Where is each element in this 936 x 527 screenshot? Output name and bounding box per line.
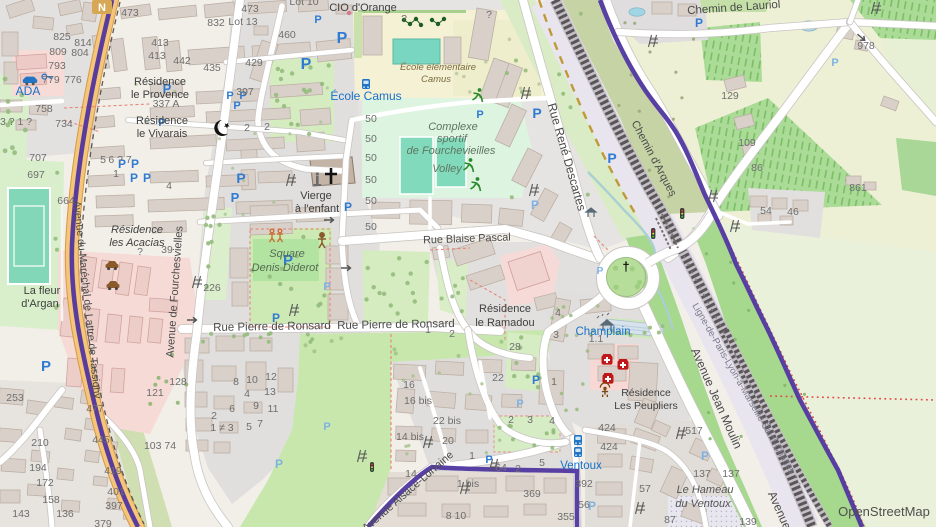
svg-text:8: 8	[233, 376, 239, 388]
svg-text:50: 50	[365, 152, 377, 164]
svg-text:776: 776	[64, 74, 82, 86]
svg-text:460: 460	[278, 29, 296, 41]
svg-text:137: 137	[693, 468, 711, 480]
svg-text:20: 20	[442, 435, 454, 447]
svg-text:4: 4	[166, 180, 172, 192]
svg-text:Rue Pierre de Ronsard: Rue Pierre de Ronsard	[213, 320, 331, 334]
svg-text:337 A: 337 A	[153, 98, 180, 110]
svg-text:7: 7	[257, 418, 263, 430]
svg-text:473: 473	[241, 3, 259, 15]
svg-text:8 10: 8 10	[446, 510, 467, 522]
svg-text:3: 3	[553, 329, 559, 341]
svg-text:1: 1	[551, 376, 557, 388]
svg-text:Vierge: Vierge	[300, 190, 332, 202]
svg-text:664: 664	[57, 195, 75, 207]
svg-text:413: 413	[148, 50, 166, 62]
svg-text:14: 14	[405, 468, 417, 480]
svg-text:445: 445	[92, 434, 110, 446]
svg-text:758: 758	[35, 103, 53, 115]
svg-text:707: 707	[29, 152, 47, 164]
svg-text:793: 793	[48, 60, 66, 72]
svg-text:N: N	[98, 2, 106, 14]
svg-text:2: 2	[211, 410, 217, 422]
svg-text:5: 5	[100, 154, 106, 166]
svg-text:5: 5	[539, 457, 545, 469]
svg-text:86: 86	[751, 162, 763, 174]
svg-text:Ventoux: Ventoux	[560, 460, 602, 472]
svg-text:P: P	[695, 16, 703, 30]
svg-text:P: P	[275, 457, 283, 471]
svg-text:210: 210	[31, 437, 49, 449]
svg-text:P: P	[531, 198, 539, 212]
svg-text:P: P	[314, 14, 321, 26]
svg-text:809: 809	[49, 46, 67, 58]
svg-text:14 bis: 14 bis	[396, 431, 424, 443]
svg-text:413: 413	[151, 37, 169, 49]
svg-text:136: 136	[56, 508, 74, 520]
svg-text:Complexe: Complexe	[428, 121, 478, 133]
svg-text:56: 56	[578, 499, 590, 511]
svg-text:Denis Diderot: Denis Diderot	[252, 262, 320, 274]
svg-text:P: P	[701, 449, 709, 463]
svg-text:253: 253	[6, 392, 24, 404]
svg-text:392: 392	[575, 478, 593, 490]
svg-text:129: 129	[721, 90, 739, 102]
svg-text:6: 6	[229, 403, 235, 415]
svg-text:La fleur: La fleur	[24, 285, 61, 297]
svg-text:P: P	[231, 190, 240, 205]
svg-text:143: 143	[12, 508, 30, 520]
svg-text:à l'enfant: à l'enfant	[295, 203, 339, 215]
svg-text:50: 50	[365, 174, 377, 186]
svg-text:P: P	[301, 56, 312, 73]
svg-text:734: 734	[55, 118, 73, 130]
svg-text:429: 429	[245, 57, 263, 69]
svg-text:4: 4	[244, 388, 250, 400]
svg-text:978: 978	[857, 40, 875, 52]
svg-text:419: 419	[104, 465, 122, 477]
svg-text:16: 16	[403, 379, 415, 391]
svg-text:1.1: 1.1	[589, 333, 604, 345]
svg-text:P: P	[476, 109, 483, 121]
svg-text:424: 424	[600, 441, 618, 453]
svg-text:697: 697	[27, 169, 45, 181]
svg-text:22 bis: 22 bis	[433, 415, 461, 427]
svg-text:sportif: sportif	[437, 133, 468, 145]
svg-text:P: P	[131, 157, 139, 171]
svg-text:517: 517	[685, 425, 703, 437]
svg-text:Résidence: Résidence	[479, 303, 531, 315]
svg-text:P: P	[130, 171, 138, 185]
svg-text:2: 2	[515, 463, 521, 475]
svg-text:9: 9	[253, 400, 259, 412]
svg-text:Résidence: Résidence	[136, 115, 188, 127]
svg-text:54: 54	[760, 205, 772, 217]
svg-text:397: 397	[236, 86, 254, 98]
svg-text:d'Argan: d'Argan	[21, 298, 59, 310]
svg-text:825: 825	[53, 31, 71, 43]
svg-text:355: 355	[557, 511, 575, 523]
svg-text:4: 4	[555, 307, 561, 319]
svg-text:10: 10	[246, 374, 258, 386]
svg-text:401: 401	[107, 486, 125, 498]
svg-text:442: 442	[173, 55, 191, 67]
svg-text:50: 50	[365, 195, 377, 207]
svg-text:du Ventoux: du Ventoux	[675, 498, 731, 510]
svg-text:Résidence: Résidence	[621, 387, 671, 399]
svg-text:832: 832	[207, 17, 225, 29]
svg-text:CIO d'Orange: CIO d'Orange	[329, 2, 397, 14]
svg-text:P: P	[516, 398, 523, 410]
svg-text:P: P	[597, 266, 604, 277]
svg-text:379: 379	[94, 518, 112, 527]
svg-text:École élémentaire: École élémentaire	[400, 62, 476, 73]
svg-text:2: 2	[264, 121, 270, 133]
svg-text:?: ?	[137, 246, 143, 258]
svg-text:P: P	[532, 373, 540, 387]
svg-text:P: P	[344, 200, 352, 214]
svg-text:Le Hameau: Le Hameau	[677, 484, 734, 496]
svg-text:121: 121	[146, 387, 164, 399]
svg-text:le Vivarais: le Vivarais	[137, 128, 188, 140]
svg-text:P: P	[236, 170, 245, 186]
svg-text:École Camus: École Camus	[330, 88, 401, 103]
svg-text:12: 12	[265, 371, 277, 383]
svg-text:P: P	[607, 150, 616, 166]
svg-text:†: †	[622, 259, 629, 274]
svg-text:le Ramadou: le Ramadou	[475, 317, 534, 329]
svg-text:5: 5	[246, 421, 252, 433]
svg-text:779: 779	[42, 74, 60, 86]
svg-text:22: 22	[492, 372, 504, 384]
svg-text:46: 46	[787, 206, 799, 218]
svg-text:3: 3	[527, 414, 533, 426]
svg-text:804: 804	[71, 47, 89, 59]
svg-text:?: ?	[401, 13, 407, 25]
svg-text:Lot 13: Lot 13	[228, 16, 257, 28]
svg-text:Résidence: Résidence	[111, 224, 163, 236]
svg-text:ADA: ADA	[16, 84, 41, 98]
svg-text:2: 2	[244, 122, 250, 134]
svg-text:16 bis: 16 bis	[404, 395, 432, 407]
svg-text:6 ? 7: 6 ? 7	[108, 154, 132, 166]
svg-text:1: 1	[425, 324, 431, 336]
svg-text:Camus: Camus	[421, 74, 451, 85]
svg-text:de Fourchevieilles: de Fourchevieilles	[407, 145, 496, 157]
svg-text:57: 57	[639, 483, 651, 495]
svg-text:P: P	[532, 105, 541, 121]
svg-text:50: 50	[365, 221, 377, 233]
svg-text:3 ? 1 ?: 3 ? 1 ?	[0, 116, 32, 128]
svg-text:Résidence: Résidence	[134, 76, 186, 88]
svg-text:861: 861	[849, 182, 867, 194]
svg-text:Square: Square	[269, 248, 304, 260]
svg-text:1: 1	[113, 168, 119, 180]
svg-text:11: 11	[268, 403, 279, 415]
svg-text:477: 477	[86, 403, 104, 415]
svg-text:50: 50	[365, 133, 377, 145]
svg-text:64: 64	[495, 462, 507, 474]
svg-text:28: 28	[509, 341, 521, 353]
svg-text:P: P	[831, 57, 838, 69]
svg-text:Lot 10: Lot 10	[289, 0, 318, 8]
svg-text:39: 39	[161, 244, 173, 256]
svg-text:473: 473	[121, 7, 139, 19]
svg-text:172: 172	[36, 477, 54, 489]
svg-text:369: 369	[523, 488, 541, 500]
svg-text:P: P	[143, 171, 151, 185]
svg-text:1: 1	[469, 450, 475, 462]
svg-text:158: 158	[42, 494, 60, 506]
svg-text:137: 137	[722, 468, 740, 480]
svg-text:87: 87	[664, 514, 676, 526]
svg-text:50: 50	[365, 113, 377, 125]
svg-text:1 ≠ 3: 1 ≠ 3	[210, 422, 233, 434]
svg-text:139: 139	[739, 516, 757, 527]
svg-text:13: 13	[264, 386, 276, 398]
svg-text:Les Peupliers: Les Peupliers	[614, 400, 678, 412]
svg-text:P: P	[323, 281, 330, 293]
svg-text:103 74: 103 74	[144, 440, 176, 452]
svg-text:P: P	[233, 100, 240, 112]
svg-text:OpenStreetMap: OpenStreetMap	[838, 504, 930, 519]
svg-text:1 bis: 1 bis	[457, 478, 479, 490]
svg-text:109: 109	[738, 137, 756, 149]
svg-text:2: 2	[508, 414, 514, 426]
svg-text:194: 194	[29, 462, 47, 474]
svg-text:128: 128	[169, 376, 187, 388]
svg-text:435: 435	[203, 62, 221, 74]
svg-text:Rue Pierre de Ronsard: Rue Pierre de Ronsard	[337, 318, 455, 332]
svg-text:397: 397	[105, 500, 123, 512]
svg-text:P: P	[323, 421, 330, 433]
svg-text:?: ?	[486, 9, 492, 21]
svg-text:P: P	[337, 30, 348, 47]
svg-text:P: P	[41, 358, 51, 375]
svg-text:4: 4	[549, 415, 555, 427]
svg-text:424: 424	[598, 422, 616, 434]
svg-text:226: 226	[203, 282, 221, 294]
svg-text:Volley: Volley	[432, 163, 463, 175]
svg-text:2: 2	[449, 328, 455, 340]
